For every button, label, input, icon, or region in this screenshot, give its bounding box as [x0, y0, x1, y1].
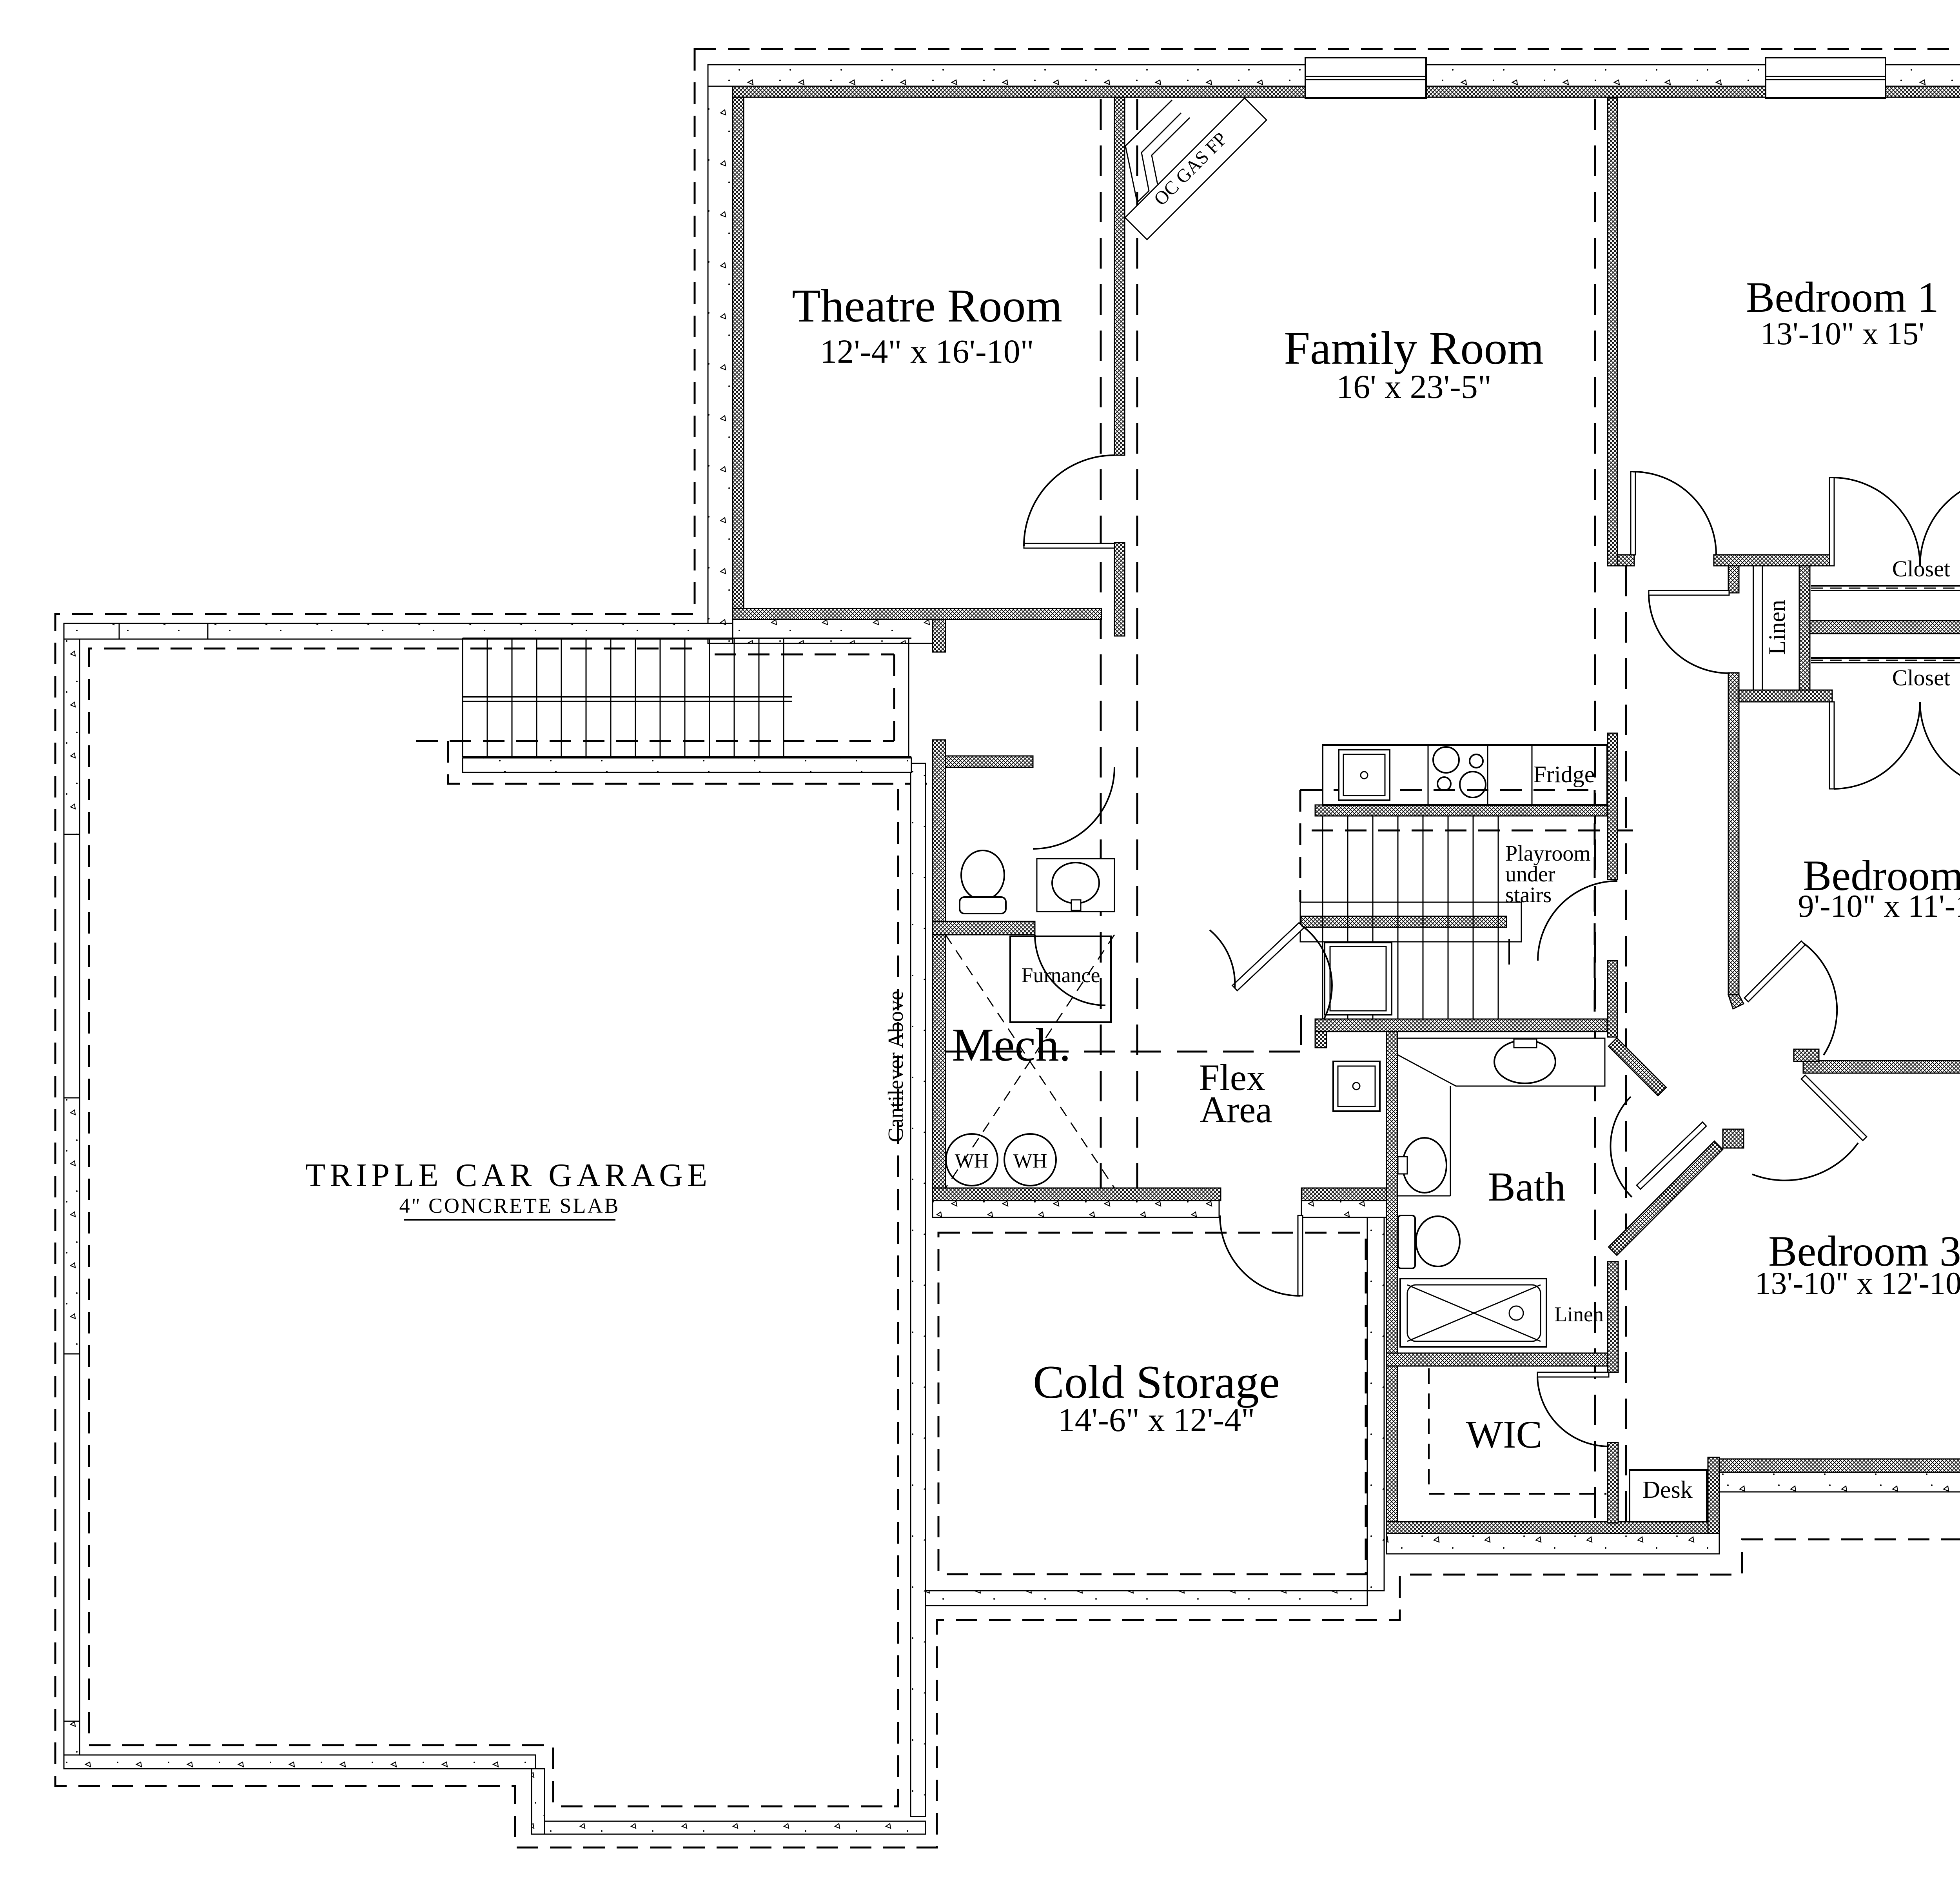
svg-text:Cold Storage: Cold Storage — [1033, 1356, 1280, 1408]
svg-text:WH: WH — [1013, 1150, 1047, 1172]
svg-text:Bedroom 1: Bedroom 1 — [1746, 273, 1939, 321]
svg-text:Theatre Room: Theatre Room — [792, 280, 1062, 332]
svg-text:16' x 23'-5": 16' x 23'-5" — [1336, 368, 1492, 405]
svg-text:9'-10" x 11'-10": 9'-10" x 11'-10" — [1798, 888, 1960, 924]
svg-text:Linen: Linen — [1554, 1303, 1604, 1326]
svg-text:WIC: WIC — [1466, 1413, 1542, 1456]
svg-text:4" CONCRETE SLAB: 4" CONCRETE SLAB — [399, 1194, 620, 1217]
svg-text:Cantilever Above: Cantilever Above — [884, 991, 907, 1142]
svg-text:14'-6" x 12'-4": 14'-6" x 12'-4" — [1058, 1401, 1255, 1439]
svg-text:12'-4" x 16'-10": 12'-4" x 16'-10" — [820, 332, 1034, 370]
svg-text:Family Room: Family Room — [1284, 322, 1544, 374]
svg-text:Furnance: Furnance — [1022, 963, 1100, 987]
svg-text:Desk: Desk — [1642, 1477, 1692, 1503]
svg-text:Closet: Closet — [1892, 556, 1950, 581]
svg-text:Bath: Bath — [1488, 1164, 1566, 1210]
svg-text:Linen: Linen — [1764, 600, 1790, 655]
svg-text:13'-10" x 15': 13'-10" x 15' — [1760, 316, 1924, 351]
svg-text:WH: WH — [955, 1150, 989, 1172]
svg-text:TRIPLE CAR GARAGE: TRIPLE CAR GARAGE — [305, 1157, 711, 1194]
svg-text:Fridge: Fridge — [1534, 761, 1595, 787]
svg-text:stairs: stairs — [1505, 883, 1552, 907]
svg-text:Mech.: Mech. — [952, 1019, 1071, 1071]
svg-text:Area: Area — [1200, 1089, 1272, 1130]
svg-text:Closet: Closet — [1892, 665, 1950, 690]
svg-text:13'-10" x 12'-10": 13'-10" x 12'-10" — [1755, 1265, 1960, 1301]
